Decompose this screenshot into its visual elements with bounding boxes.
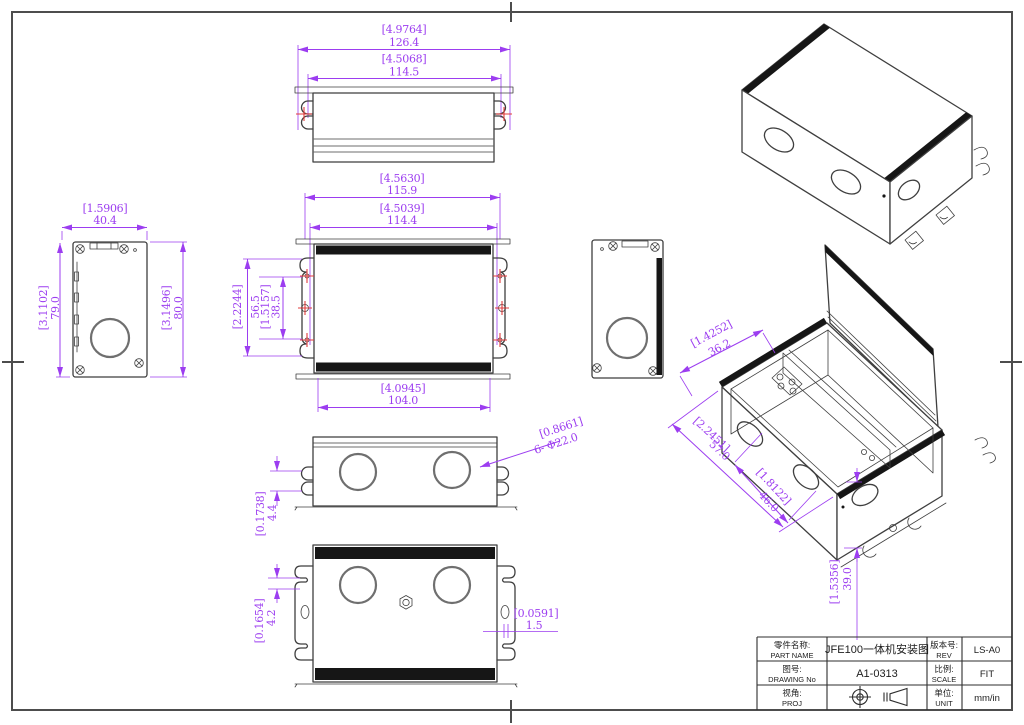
front-view: [4.5630] 115.9 [4.5039] 114.4 [2.2244] 5… xyxy=(231,172,510,412)
projection-symbol-icon xyxy=(849,686,907,708)
dim-iso4-inch: [1.5356] xyxy=(828,560,841,605)
base-plate-edge xyxy=(295,507,517,510)
flange-edge-bottom xyxy=(296,374,510,379)
dim-front-w2-mm: 114.4 xyxy=(387,214,417,227)
dim-front-w1-mm: 115.9 xyxy=(387,184,417,197)
screw xyxy=(649,367,658,376)
pilot-hole xyxy=(601,248,604,251)
bottom-view: [0.1654] 4.2 [0.0591] 1.5 xyxy=(253,545,558,687)
dim-top-inner-mm: 114.5 xyxy=(389,66,419,79)
scale-label-cn: 比例: xyxy=(934,664,953,674)
proj-label-cn: 视角: xyxy=(782,688,801,698)
rev-label-cn: 版本号: xyxy=(930,640,958,650)
screw xyxy=(76,366,85,375)
scale-value: FIT xyxy=(980,669,994,680)
body-outline xyxy=(314,244,493,373)
dim-front-h1-inch: [2.2244] xyxy=(231,285,244,330)
proj-label-en: PROJ xyxy=(782,699,802,708)
side-bracket-right xyxy=(497,566,515,660)
iso-closed-view xyxy=(742,24,989,249)
mount-hook-pair xyxy=(302,467,314,495)
dim-gap2-mm: 4.2 xyxy=(265,610,278,627)
unit-label-cn: 单位: xyxy=(934,688,953,698)
screw-dot xyxy=(842,506,845,509)
flange-edge-top xyxy=(296,239,510,244)
dim-iso4-mm: 39.0 xyxy=(841,567,854,591)
drawing-no-label-cn: 图号: xyxy=(782,664,801,674)
right-side-view xyxy=(592,240,663,378)
screw xyxy=(76,245,85,254)
dim-top-outer-inch: [4.9764] xyxy=(382,23,427,36)
dim-gap1-mm: 4.4 xyxy=(266,504,279,521)
rev-label-en: REV xyxy=(936,651,951,660)
dim-top-outer-mm: 126.4 xyxy=(389,36,419,49)
unit-label-en: UNIT xyxy=(935,699,953,708)
screw xyxy=(135,359,144,368)
dim-side-w-mm: 40.4 xyxy=(93,214,117,227)
rev-value: LS-A0 xyxy=(974,645,1000,656)
long-side-view: [0.1738] 4.4 [0.8661] 6- Φ22.0 xyxy=(254,415,584,537)
screw-dot xyxy=(934,435,937,438)
flange-bar-bottom xyxy=(316,363,491,372)
base-plate-edge xyxy=(295,684,517,687)
drawing-no-value: A1-0313 xyxy=(856,668,898,680)
dim-thickness-mm: 1.5 xyxy=(526,619,543,632)
flange-bar-bottom xyxy=(315,668,495,680)
drawing-no-label-en: DRAWING No xyxy=(768,675,816,684)
drawing-sheet: [4.9764] 126.4 [4.5068] 114.5 [4.5630] 1… xyxy=(0,0,1024,725)
screw xyxy=(593,364,602,373)
dim-side-h1-mm: 79.0 xyxy=(49,296,62,320)
slot-hole xyxy=(501,606,509,619)
scale-label-en: SCALE xyxy=(932,675,957,684)
iso-open-view: [1.4252] 36.2 [2.2451] 57.0 [1.8122] 46.… xyxy=(668,245,995,640)
top-tab xyxy=(90,243,118,249)
dim-side-h2-mm: 80.0 xyxy=(172,296,185,320)
pilot-hole xyxy=(134,249,137,252)
cable-hole xyxy=(607,318,647,358)
part-name-label-en: PART NAME xyxy=(771,651,814,660)
dim-front-w3-mm: 104.0 xyxy=(388,394,418,407)
flange-bar-top xyxy=(316,246,491,255)
screw xyxy=(120,245,129,254)
top-view: [4.9764] 126.4 [4.5068] 114.5 xyxy=(295,23,513,162)
screw xyxy=(609,242,618,251)
top-tab xyxy=(622,241,648,247)
screw-dot xyxy=(882,194,885,197)
side-bracket-left xyxy=(295,566,313,660)
screw-dot xyxy=(950,126,953,129)
mount-hook-pair xyxy=(302,101,314,129)
title-block: 零件名称: PART NAME JFE100一体机安装图 版本号: REV LS… xyxy=(757,637,1012,710)
flange-edge xyxy=(295,87,513,93)
flange-bar-top xyxy=(315,547,495,559)
flange-bar-edge xyxy=(657,258,663,375)
dim-top-inner-inch: [4.5068] xyxy=(382,53,427,66)
dim-front-h2-mm: 38.5 xyxy=(270,295,283,319)
part-name-label-cn: 零件名称: xyxy=(774,640,810,650)
part-name-value: JFE100一体机安装图 xyxy=(825,642,929,656)
screw xyxy=(651,243,660,252)
mount-hook-pair xyxy=(497,467,509,495)
unit-value: mm/in xyxy=(974,693,1000,704)
body-outline xyxy=(313,545,497,682)
slot-hole xyxy=(301,606,309,619)
left-side-view: [1.5906] 40.4 [3.1102] 79.0 [3.1496] 80.… xyxy=(37,202,187,377)
cable-hole xyxy=(91,319,129,357)
